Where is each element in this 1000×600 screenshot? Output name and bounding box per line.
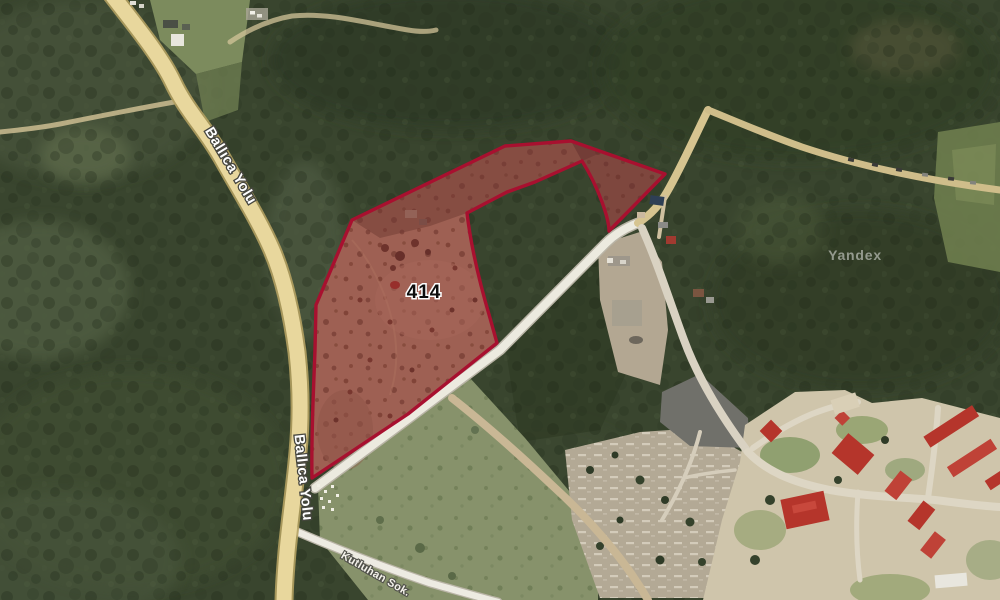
map-watermark: Yandex <box>828 247 882 263</box>
satellite-map-viewport[interactable]: 414 Ballıca Yolu Ballıca Yolu Kutluhan S… <box>0 0 1000 600</box>
farm-dark-shed <box>163 20 178 28</box>
white-building <box>935 573 968 589</box>
red-roof-house <box>666 236 676 244</box>
map-canvas[interactable]: 414 Ballıca Yolu Ballıca Yolu Kutluhan S… <box>0 0 1000 600</box>
farm-white-building <box>171 34 184 46</box>
parcel-number-label: 414 <box>407 282 442 303</box>
